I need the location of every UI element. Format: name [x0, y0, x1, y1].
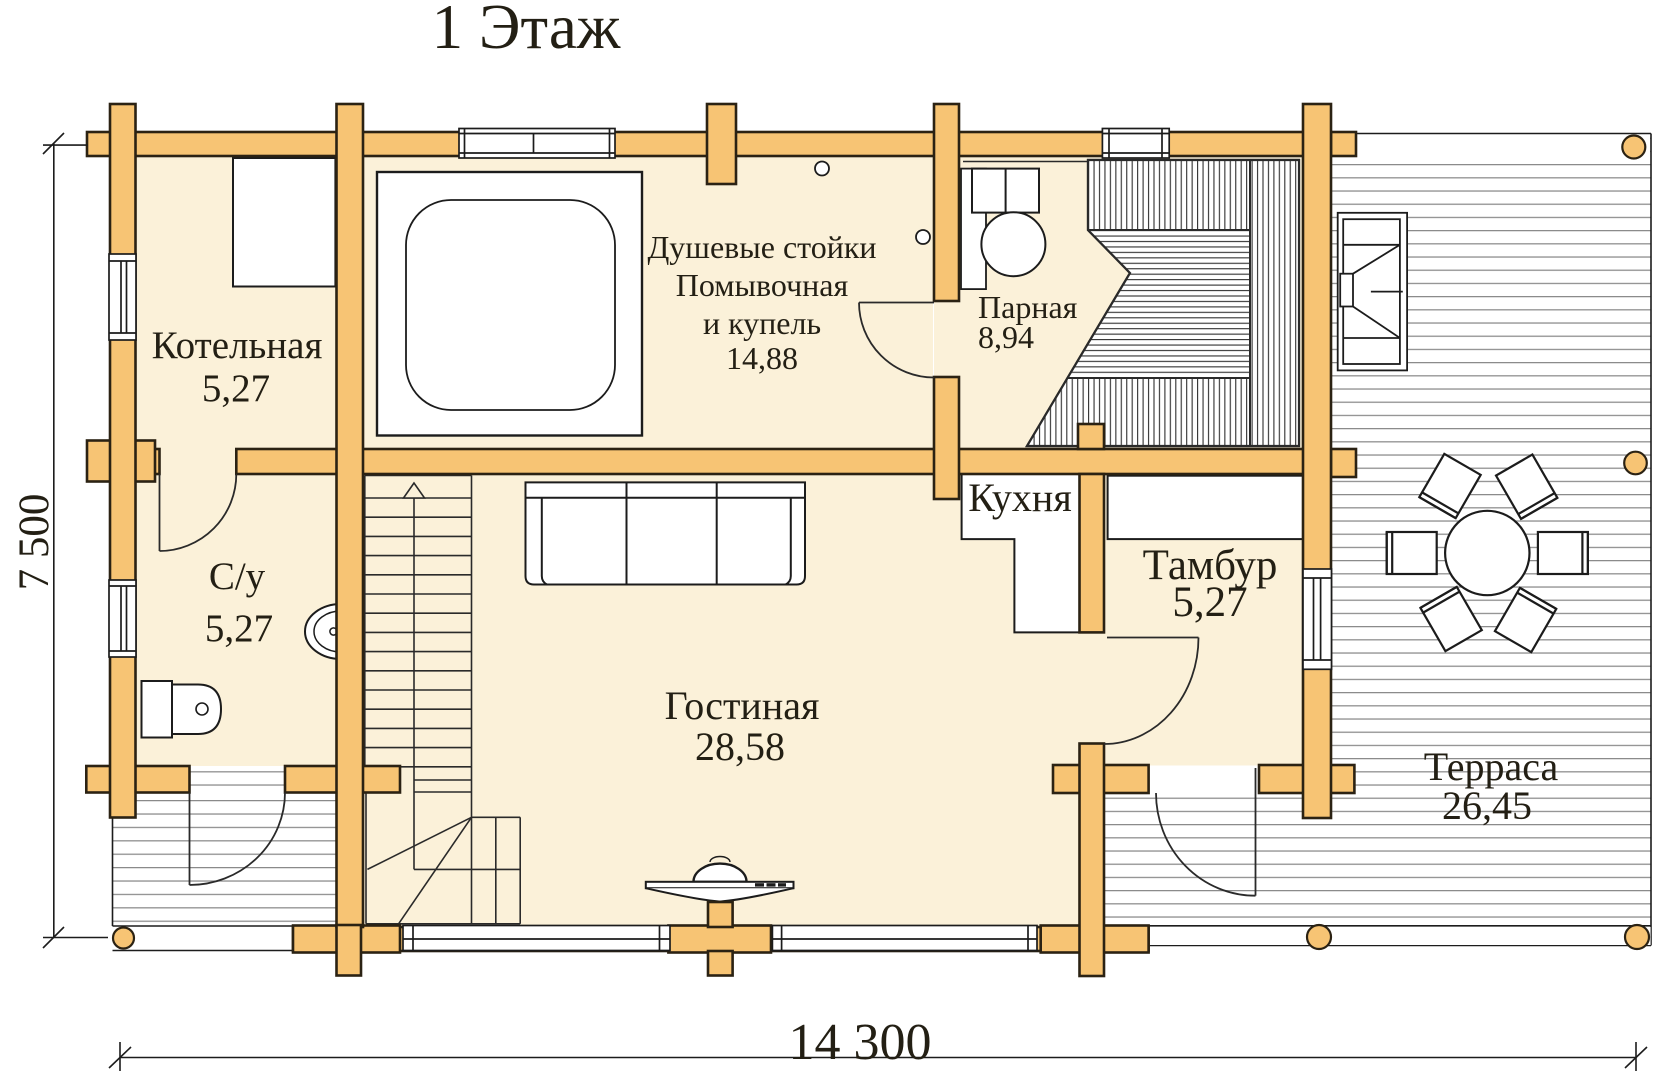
svg-text:5,27: 5,27	[202, 367, 270, 410]
svg-text:Помывочная: Помывочная	[676, 267, 849, 303]
svg-text:Кухня: Кухня	[968, 475, 1071, 520]
svg-text:Душевые стойки: Душевые стойки	[647, 229, 876, 265]
svg-text:С/у: С/у	[209, 555, 266, 598]
svg-text:8,94: 8,94	[978, 319, 1034, 355]
svg-text:1 Этаж: 1 Этаж	[432, 0, 621, 62]
svg-text:14 300: 14 300	[789, 1014, 932, 1071]
svg-text:14,88: 14,88	[726, 340, 798, 376]
svg-text:5,27: 5,27	[1172, 579, 1247, 626]
svg-text:26,45: 26,45	[1442, 783, 1532, 828]
svg-text:7 500: 7 500	[11, 494, 58, 591]
svg-text:28,58: 28,58	[695, 724, 785, 769]
svg-text:Гостиная: Гостиная	[665, 683, 820, 728]
svg-text:Котельная: Котельная	[152, 324, 323, 367]
svg-text:5,27: 5,27	[205, 607, 273, 650]
svg-text:и купель: и купель	[703, 305, 821, 341]
